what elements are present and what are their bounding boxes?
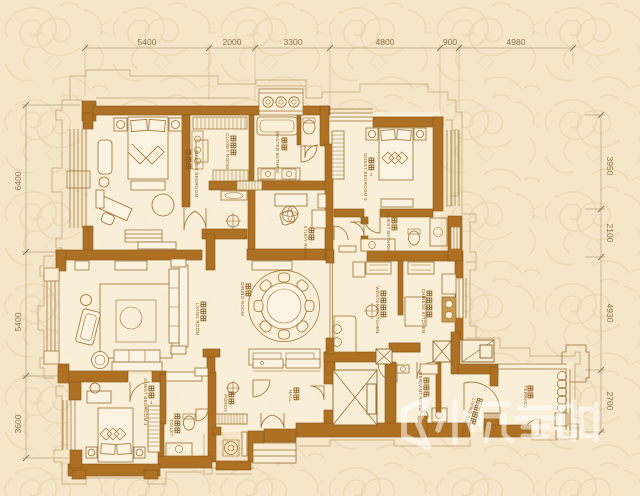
- svg-text:5400: 5400: [13, 312, 23, 331]
- svg-text:MASTER BATHRM: MASTER BATHRM: [275, 131, 280, 173]
- svg-text:GUEST BEDROOM 1: GUEST BEDROOM 1: [143, 378, 148, 426]
- svg-text:2: 2: [370, 172, 373, 177]
- svg-text:3600: 3600: [13, 414, 23, 433]
- svg-text:CLOSET ROOM: CLOSET ROOM: [225, 133, 230, 169]
- svg-text:4800: 4800: [376, 37, 395, 47]
- svg-text:3300: 3300: [284, 37, 303, 47]
- svg-text:4930: 4930: [605, 304, 615, 323]
- svg-text:HALL: HALL: [288, 390, 293, 403]
- svg-text:GUEST BATHRM: GUEST BATHRM: [386, 213, 391, 251]
- svg-text:GUEST BEDROOM 2: GUEST BEDROOM 2: [363, 153, 368, 201]
- svg-text:WESTERN KITCHEN: WESTERN KITCHEN: [375, 286, 380, 333]
- svg-text:1: 1: [150, 400, 153, 405]
- svg-text:DINING ROOM: DINING ROOM: [240, 282, 245, 316]
- svg-text:5400: 5400: [138, 37, 157, 47]
- svg-text:PORCH: PORCH: [223, 394, 228, 412]
- svg-text:TERRACE: TERRACE: [523, 385, 528, 408]
- svg-text:2700: 2700: [605, 392, 615, 411]
- svg-text:3950: 3950: [605, 157, 615, 176]
- svg-text:TOILET: TOILET: [169, 419, 174, 436]
- svg-text:MASTER BEDROOM: MASTER BEDROOM: [194, 151, 199, 198]
- svg-text:900: 900: [443, 37, 457, 47]
- svg-text:6400: 6400: [13, 171, 23, 190]
- svg-text:STUDY ROOM: STUDY ROOM: [303, 225, 308, 258]
- svg-text:CHINESE KITCHEN: CHINESE KITCHEN: [421, 289, 426, 334]
- svg-text:LIVING ROOM: LIVING ROOM: [195, 303, 200, 336]
- svg-text:2100: 2100: [605, 224, 615, 243]
- svg-text:4980: 4980: [507, 37, 526, 47]
- svg-text:2000: 2000: [223, 37, 242, 47]
